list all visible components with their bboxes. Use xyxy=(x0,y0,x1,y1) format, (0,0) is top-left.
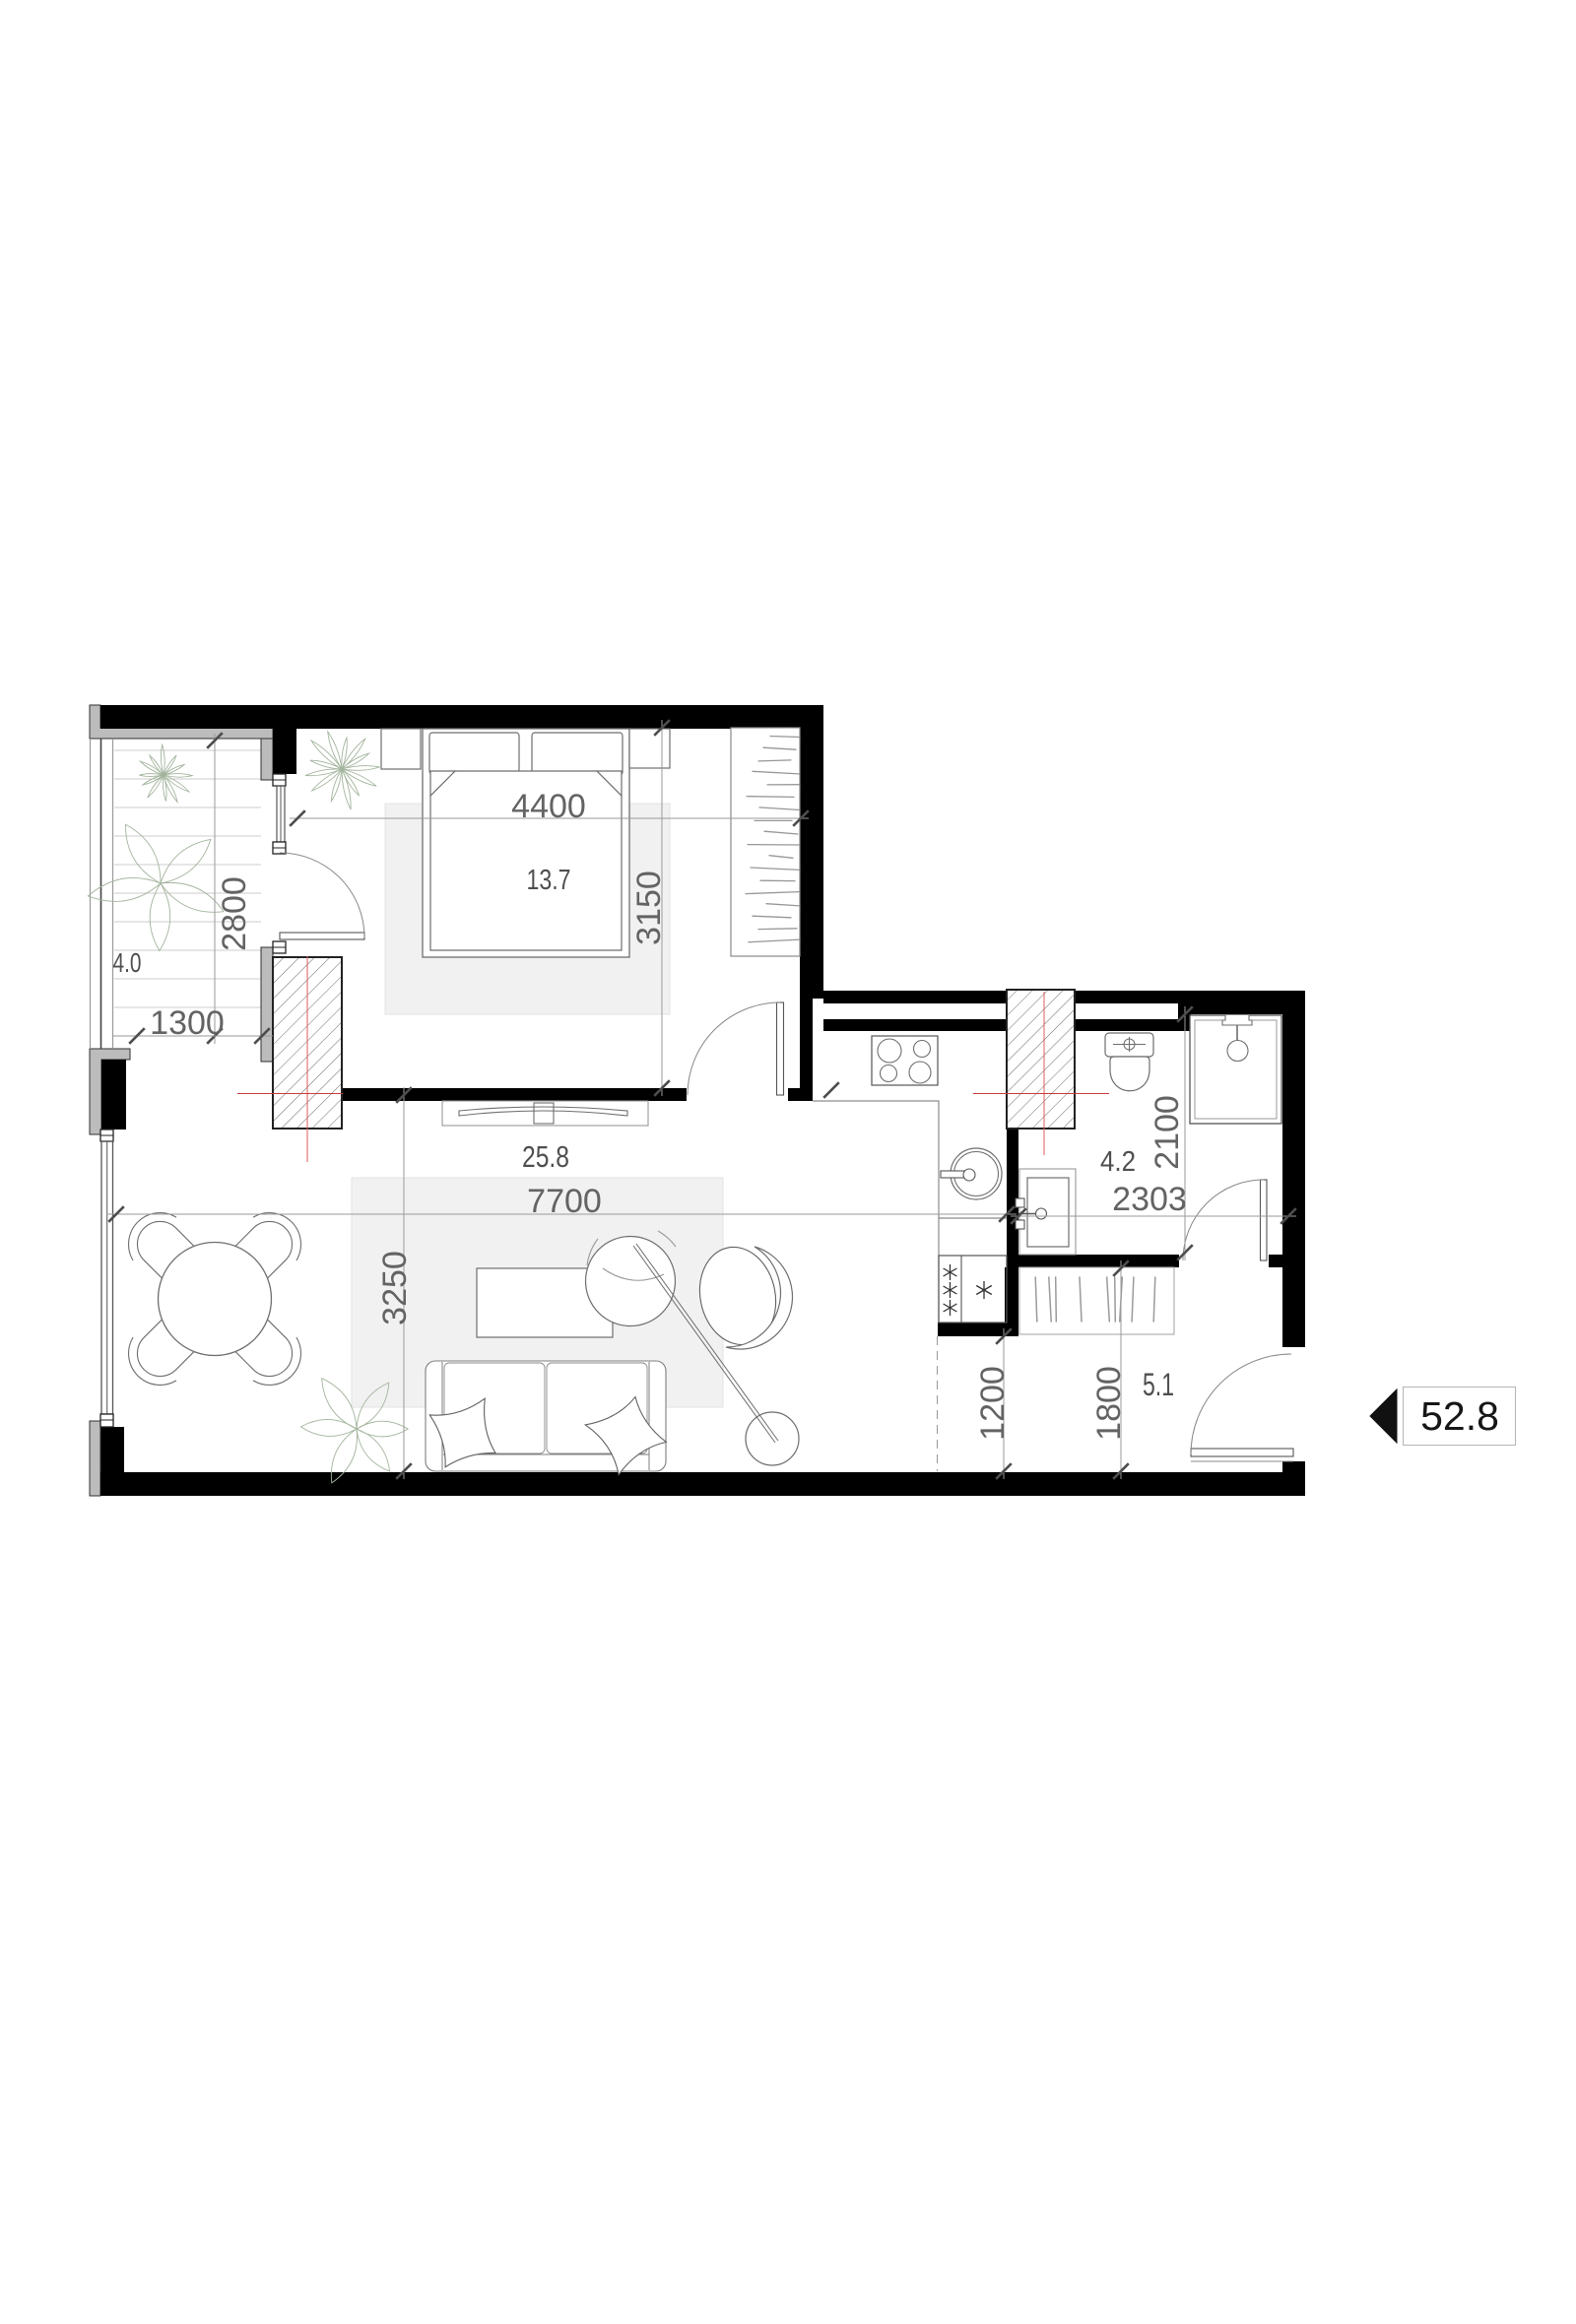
svg-text:52.8: 52.8 xyxy=(1420,1393,1499,1439)
svg-text:4400: 4400 xyxy=(511,788,586,825)
svg-text:2800: 2800 xyxy=(216,876,253,951)
svg-text:2100: 2100 xyxy=(1149,1095,1186,1170)
svg-text:7700: 7700 xyxy=(527,1183,602,1220)
svg-text:4.2: 4.2 xyxy=(1100,1146,1136,1178)
svg-text:1300: 1300 xyxy=(150,1004,225,1042)
svg-text:3150: 3150 xyxy=(630,871,668,945)
svg-text:1800: 1800 xyxy=(1090,1366,1128,1441)
svg-text:3250: 3250 xyxy=(376,1251,414,1325)
svg-text:2303: 2303 xyxy=(1112,1181,1187,1218)
svg-text:4.0: 4.0 xyxy=(113,947,142,978)
svg-text:1200: 1200 xyxy=(974,1366,1012,1441)
svg-text:5.1: 5.1 xyxy=(1143,1367,1174,1402)
svg-text:25.8: 25.8 xyxy=(522,1139,569,1174)
svg-text:13.7: 13.7 xyxy=(527,865,571,896)
